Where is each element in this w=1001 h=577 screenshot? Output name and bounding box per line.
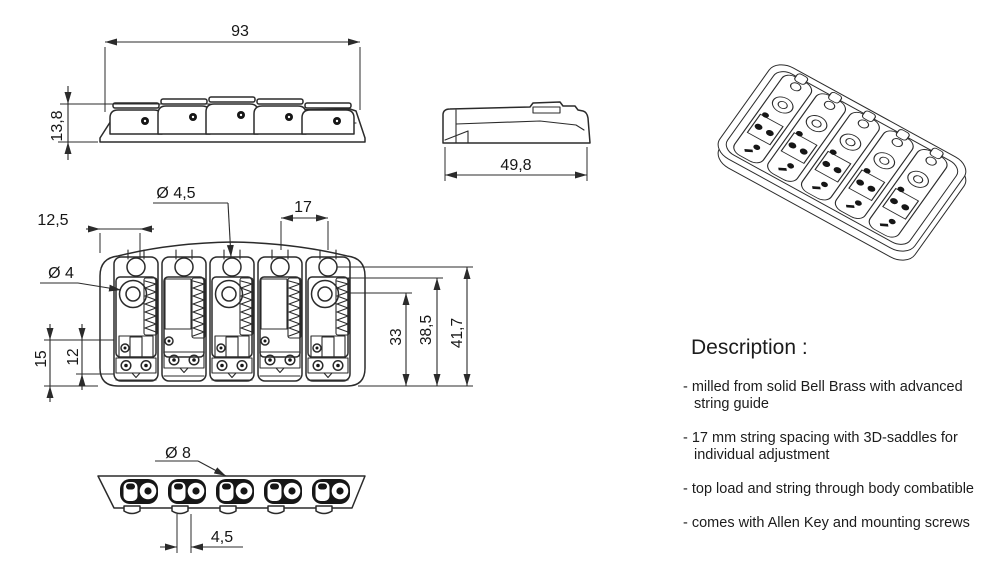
description-bullet-1: - milled from solid Bell Brass with adva… xyxy=(683,379,989,413)
dim-label-h1: 15 xyxy=(33,350,50,367)
dim-label-width: 93 xyxy=(231,23,249,40)
dim-label-depth-to-screw: 33 xyxy=(388,328,405,345)
dim-label-hole-offset: 4,5 xyxy=(211,529,233,546)
description-bullet-3: - top load and string through body comba… xyxy=(683,481,989,498)
dim-label-total-depth: 41,7 xyxy=(449,318,466,348)
saddle-profiles xyxy=(110,97,354,134)
description-panel: Description : - milled from solid Bell B… xyxy=(683,336,989,549)
dim-depth-49-8: 49,8 xyxy=(445,147,587,181)
description-bullet-4: - comes with Allen Key and mounting scre… xyxy=(683,515,989,532)
description-title: Description : xyxy=(691,336,989,360)
dim-label-h2: 12 xyxy=(65,348,82,365)
bridge-side-outline xyxy=(443,102,590,143)
dim-label-depth: 49,8 xyxy=(500,157,531,174)
side-profile-view: 49,8 xyxy=(443,102,590,181)
dim-label-edge-to-hole: 12,5 xyxy=(37,212,68,229)
dim-label-depth-to-saddle: 38,5 xyxy=(418,315,435,345)
dim-bottom-hole-dia: Ø 8 xyxy=(155,445,226,476)
dim-label-string-hole-dia: Ø 4,5 xyxy=(156,185,195,202)
dim-label-bottom-hole-dia: Ø 8 xyxy=(165,445,191,462)
dim-label-string-spacing: 17 xyxy=(294,199,312,216)
dim-label-screw-dia: Ø 4 xyxy=(48,265,74,282)
isometric-view xyxy=(712,59,972,266)
dim-hole-offset-4-5: 4,5 xyxy=(160,514,243,553)
technical-drawing-page: 93 13,8 49,8 xyxy=(0,0,1001,577)
bottom-view: Ø 8 4,5 xyxy=(98,445,365,553)
description-bullet-2: - 17 mm string spacing with 3D-saddles f… xyxy=(683,430,989,464)
top-view: 12,5 Ø 4,5 17 Ø 4 15 xyxy=(33,185,473,402)
dim-string-spacing-17: 17 xyxy=(281,199,328,250)
front-elevation-view: 93 13,8 xyxy=(49,23,365,160)
dim-label-height: 13,8 xyxy=(49,110,66,141)
